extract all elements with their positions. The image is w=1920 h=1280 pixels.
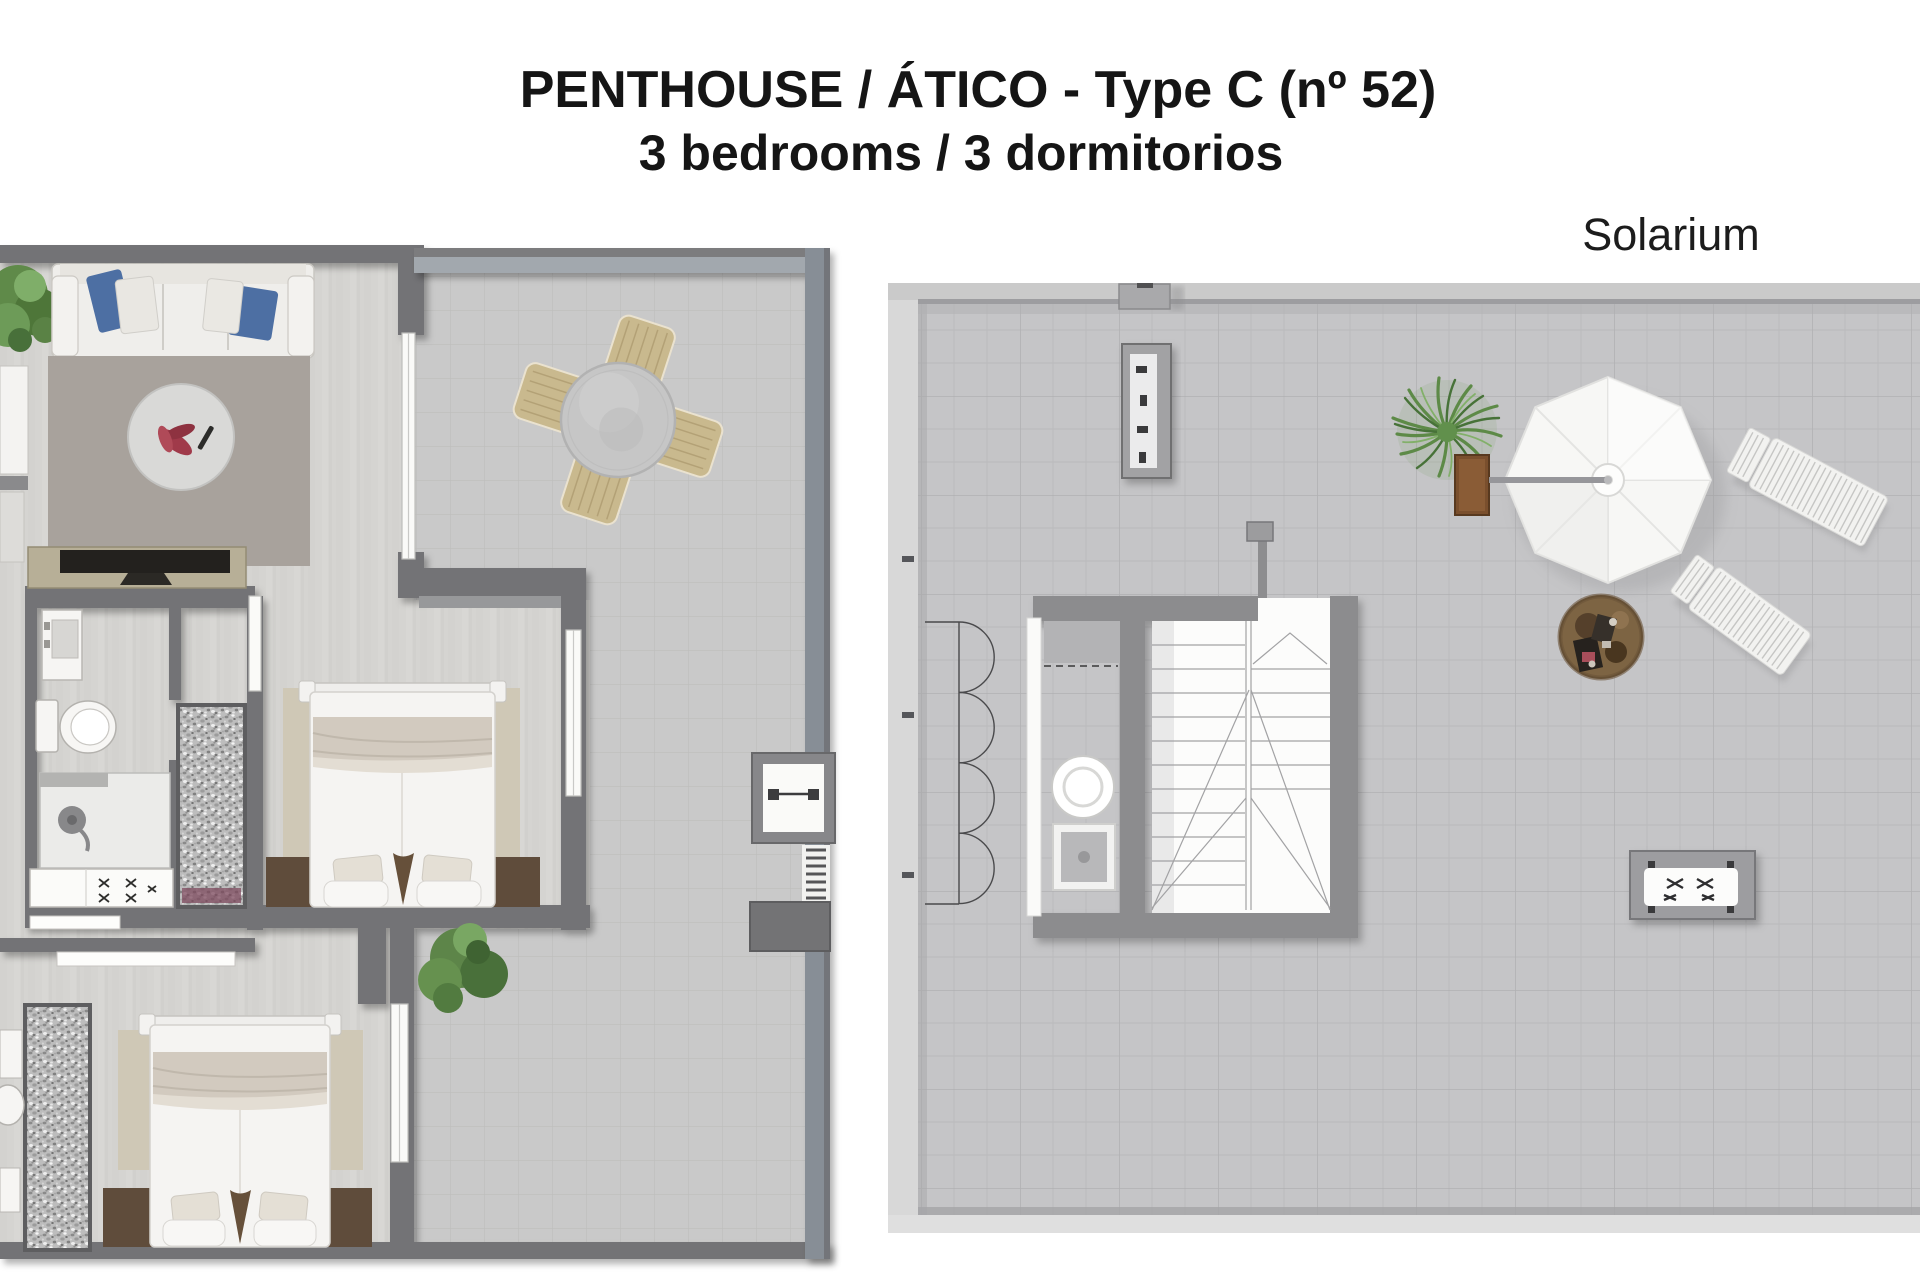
svg-text:Solarium: Solarium: [1582, 209, 1760, 260]
svg-text:3 bedrooms / 3 dormitorios: 3 bedrooms / 3 dormitorios: [639, 125, 1284, 181]
svg-text:PENTHOUSE / ÁTICO - Type C (nº: PENTHOUSE / ÁTICO - Type C (nº 52): [520, 61, 1437, 119]
